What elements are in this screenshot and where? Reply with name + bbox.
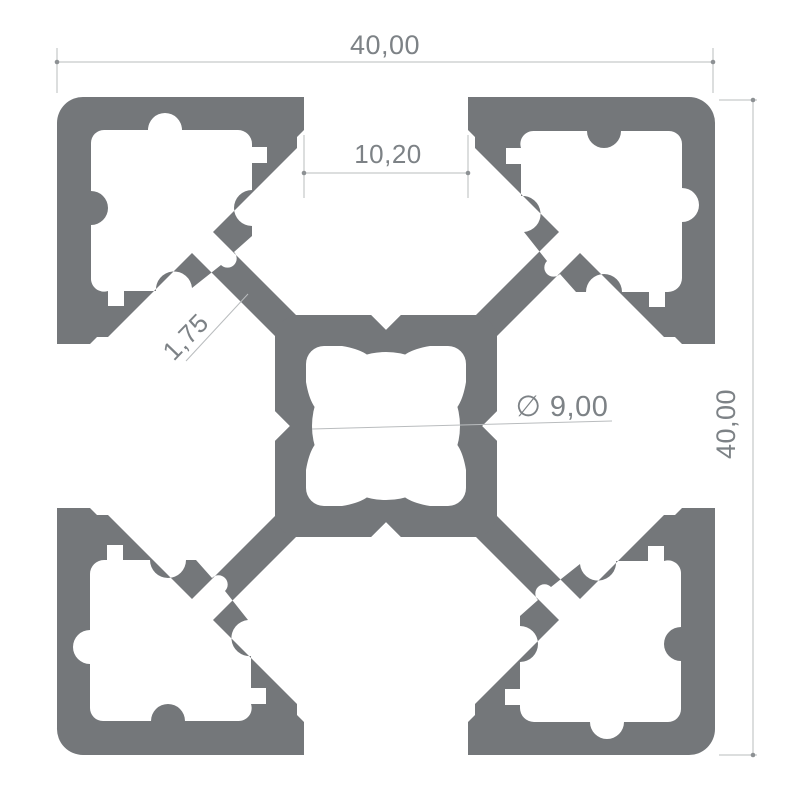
dim-wall-label: 1,75: [156, 307, 214, 366]
drawing-canvas: 40,00 10,20 40,00 1,75 ∅ 9,00: [0, 0, 800, 800]
dim-slot-label: 10,20: [354, 139, 422, 169]
dimension-tick: [466, 171, 471, 176]
profile-drawing: 40,00 10,20 40,00 1,75 ∅ 9,00: [0, 0, 800, 800]
dim-height-label: 40,00: [711, 389, 741, 459]
dimension-tick: [751, 753, 756, 758]
dimension-tick: [302, 171, 307, 176]
dimension-tick: [751, 98, 756, 103]
dim-bore-label: ∅ 9,00: [516, 391, 609, 423]
dimension-tick: [55, 60, 60, 65]
dim-width-label: 40,00: [350, 30, 420, 60]
dimension-tick: [711, 60, 716, 65]
